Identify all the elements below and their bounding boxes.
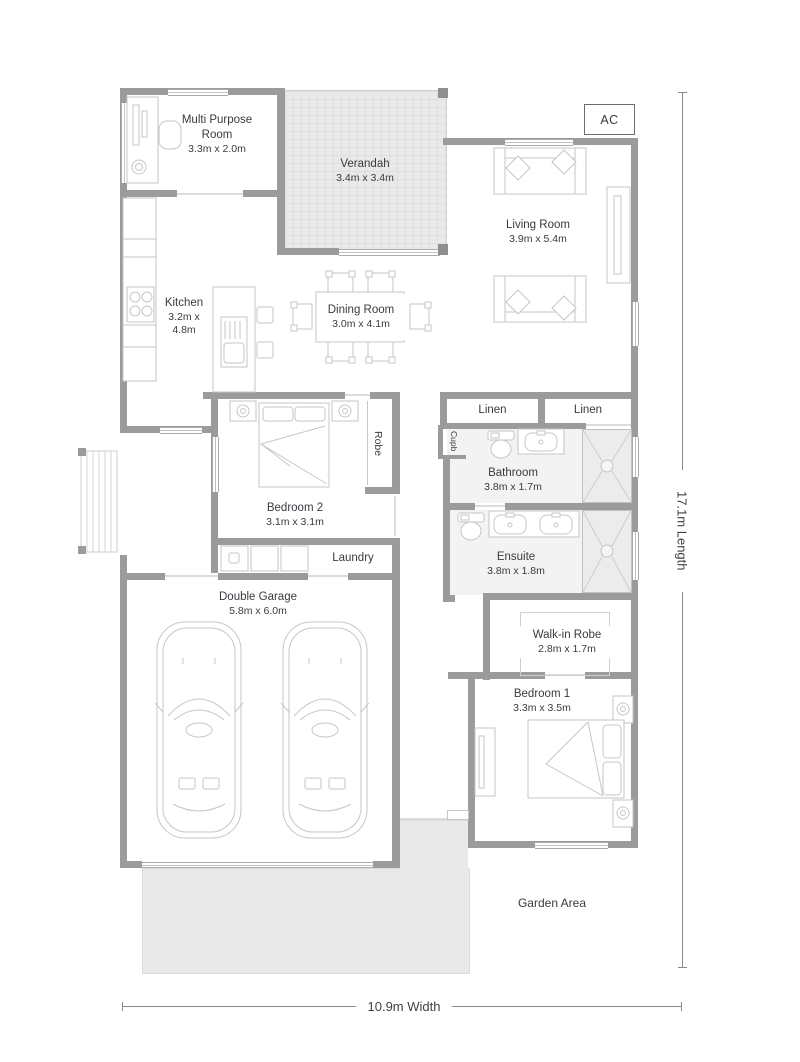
wall <box>443 459 450 503</box>
car <box>279 618 371 842</box>
door-opening <box>308 575 348 577</box>
room-name: Bedroom 2 <box>267 501 323 516</box>
laundry-bench <box>220 545 314 572</box>
verandah-post <box>438 88 448 98</box>
door-opening <box>586 424 631 426</box>
vanity <box>517 428 565 455</box>
door-opening <box>165 575 218 577</box>
kitchen-counter <box>122 197 158 383</box>
room-label-ensuite: Ensuite 3.8m x 1.8m <box>466 548 566 580</box>
garden-area-label: Garden Area <box>497 895 607 913</box>
length-dimension-line <box>682 92 683 470</box>
room-name: Kitchen <box>165 296 203 311</box>
room-name: Double Garage <box>219 590 297 605</box>
room-dims: 5.8m x 6.0m <box>229 605 287 619</box>
closet-label-cupboard: Cupb <box>444 426 464 456</box>
room-name: Verandah <box>340 157 389 172</box>
room-dims: 3.2m x 4.8m <box>162 311 206 338</box>
closet-label-linen-left: Linen <box>447 398 538 423</box>
room-label-kitchen: Kitchen 3.2m x 4.8m <box>158 292 210 342</box>
window <box>339 249 440 256</box>
room-name: Multi Purpose Room <box>180 113 254 142</box>
room-dims: 3.9m x 5.4m <box>509 233 567 247</box>
shower <box>582 429 632 503</box>
closet-label-linen-right: Linen <box>545 398 631 423</box>
room-label-bedroom1: Bedroom 1 3.3m x 3.5m <box>492 685 592 717</box>
door-opening <box>475 505 505 507</box>
room-dims: 3.4m x 3.4m <box>336 172 394 186</box>
room-dims: 2.8m x 1.7m <box>538 643 596 657</box>
floor-plan: AC Multi Purpose Room 3.3m x 2.0m Verand… <box>0 0 800 1062</box>
length-dimension-label: 17.1m Length <box>673 470 691 592</box>
wall <box>243 190 283 197</box>
window <box>632 532 639 580</box>
room-label-verandah: Verandah 3.4m x 3.4m <box>315 155 415 187</box>
shower <box>582 510 632 593</box>
window <box>632 437 639 477</box>
wall <box>505 503 638 510</box>
wall <box>443 510 450 602</box>
room-dims: 3.1m x 3.1m <box>266 516 324 530</box>
room-name: Bathroom <box>488 466 538 481</box>
dimension-text: 10.9m Width <box>368 999 441 1014</box>
wall <box>120 861 142 868</box>
closet-label-robe: Robe <box>369 404 386 484</box>
desk-and-chair <box>125 95 187 187</box>
width-dimension-line <box>122 1006 356 1007</box>
sofa <box>492 274 588 324</box>
room-name: Walk-in Robe <box>533 628 602 643</box>
width-dimension-label: 10.9m Width <box>356 998 452 1015</box>
dimension-tick <box>681 1002 682 1011</box>
sofa <box>492 146 588 196</box>
path <box>400 820 468 870</box>
bed <box>228 396 360 490</box>
wall <box>443 595 455 602</box>
wall <box>277 88 285 255</box>
wall <box>277 248 339 255</box>
dimension-tick <box>678 92 687 93</box>
room-label-walk-in-robe: Walk-in Robe 2.8m x 1.7m <box>510 626 624 658</box>
dimension-text: 17.1m Length <box>675 491 690 571</box>
room-dims: 3.3m x 2.0m <box>188 143 246 157</box>
room-label-garage: Double Garage 5.8m x 6.0m <box>196 588 320 620</box>
wall <box>365 487 400 494</box>
garage-door <box>142 862 373 868</box>
wall <box>218 573 308 580</box>
ac-unit: AC <box>584 104 635 135</box>
ac-label: AC <box>600 113 618 127</box>
window <box>505 139 573 146</box>
room-name: Living Room <box>506 218 570 233</box>
verandah-post <box>438 244 448 255</box>
wall <box>373 861 400 868</box>
dimension-tick <box>678 967 687 968</box>
closet-name: Laundry <box>332 551 374 566</box>
width-dimension-line <box>452 1006 682 1007</box>
kitchen-island <box>211 285 277 395</box>
closet-name: Cupb <box>449 431 459 451</box>
wall <box>392 538 400 868</box>
window <box>212 437 219 492</box>
dimension-tick <box>122 1002 123 1011</box>
entry-step <box>447 810 469 820</box>
room-dims: 3.3m x 3.5m <box>513 702 571 716</box>
room-label-living: Living Room 3.9m x 5.4m <box>488 216 588 248</box>
room-label-bathroom: Bathroom 3.8m x 1.7m <box>463 464 563 496</box>
room-label-bedroom2: Bedroom 2 3.1m x 3.1m <box>245 499 345 531</box>
wall <box>483 600 490 680</box>
toilet <box>486 429 516 459</box>
window <box>160 427 202 434</box>
wall <box>538 392 545 424</box>
wall <box>211 538 400 545</box>
closet-name: Linen <box>478 403 506 418</box>
room-label-multi-purpose: Multi Purpose Room 3.3m x 2.0m <box>180 103 254 167</box>
room-name: Ensuite <box>497 550 535 565</box>
wall <box>483 593 638 600</box>
double-vanity <box>488 510 580 538</box>
door-opening <box>177 193 243 195</box>
room-label-dining: Dining Room 3.0m x 4.1m <box>317 294 405 340</box>
wall <box>120 190 177 197</box>
room-dims: 3.8m x 1.7m <box>484 481 542 495</box>
room-name: Dining Room <box>328 303 394 318</box>
driveway <box>142 868 470 974</box>
toilet <box>456 511 486 541</box>
closet-name: Robe <box>371 431 384 456</box>
media-unit <box>606 186 631 284</box>
wall <box>438 425 443 458</box>
annotation-text: Garden Area <box>518 896 586 911</box>
window <box>535 842 608 849</box>
wall <box>443 503 475 510</box>
wall <box>392 392 400 494</box>
wall <box>120 555 127 868</box>
wall <box>440 392 447 424</box>
closet-name: Linen <box>574 403 602 418</box>
closet-label-laundry: Laundry <box>315 550 391 567</box>
room-dims: 3.0m x 4.1m <box>332 318 390 332</box>
entry-deck <box>76 446 120 556</box>
door-opening <box>394 496 396 536</box>
room-name: Bedroom 1 <box>514 687 570 702</box>
window <box>632 302 639 346</box>
room-dims: 3.8m x 1.8m <box>487 565 545 579</box>
length-dimension-line <box>682 592 683 968</box>
car <box>153 618 245 842</box>
